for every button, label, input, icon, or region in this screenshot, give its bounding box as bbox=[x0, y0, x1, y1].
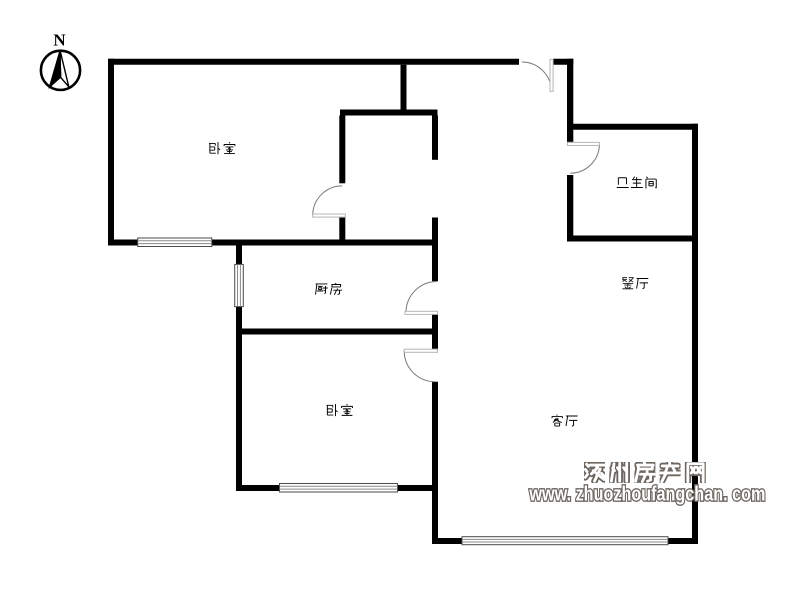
svg-text:www. zhuozhoufangchan. com: www. zhuozhoufangchan. com bbox=[529, 484, 766, 506]
svg-text:N: N bbox=[53, 31, 66, 50]
